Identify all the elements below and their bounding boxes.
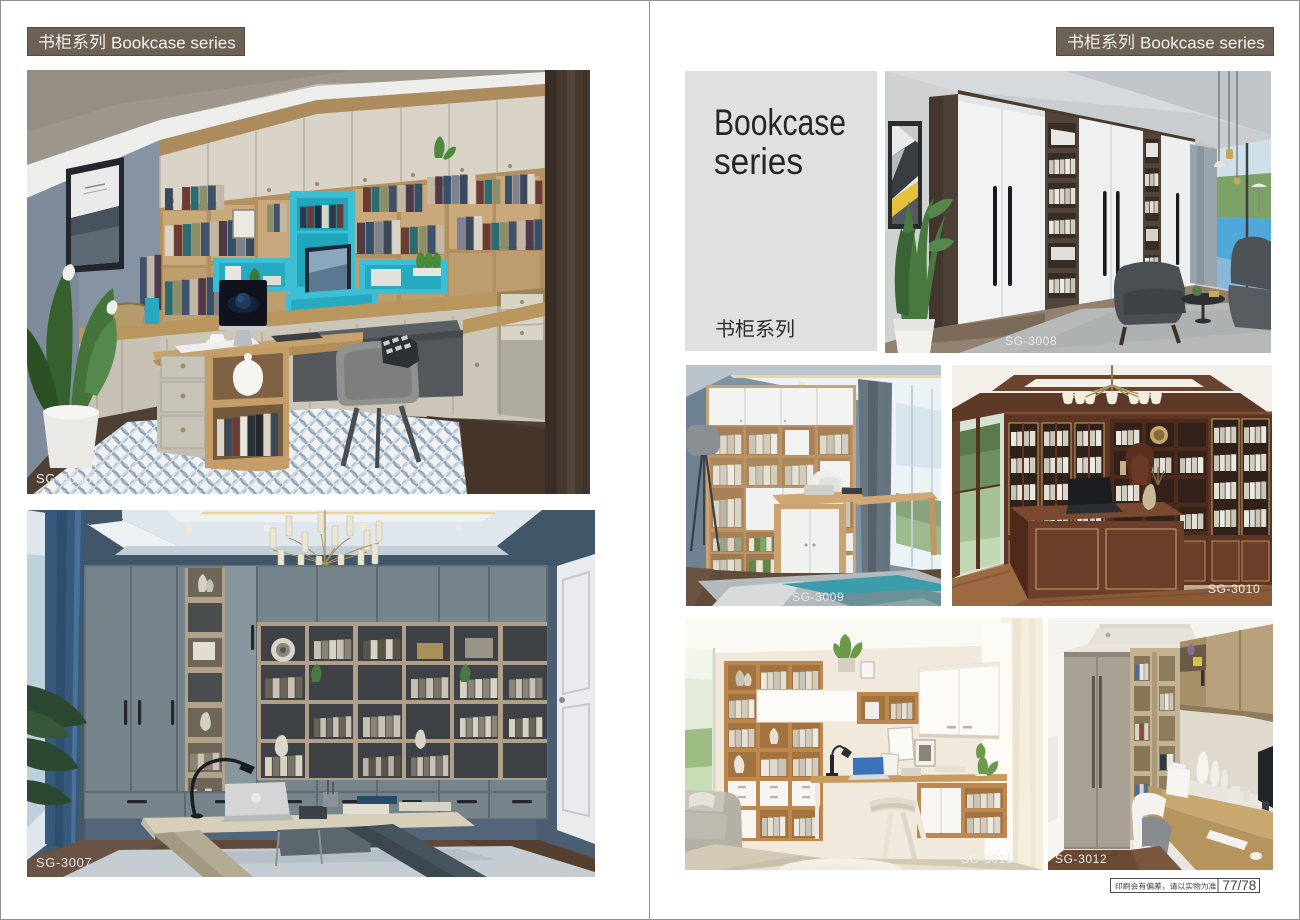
svg-text:SG-3012: SG-3012 <box>1055 852 1107 866</box>
svg-text:SG-3011: SG-3011 <box>961 852 1012 866</box>
svg-text:series: series <box>714 141 803 182</box>
svg-text:SG-3009: SG-3009 <box>792 590 844 604</box>
svg-text:Bookcase series: Bookcase series <box>1140 34 1265 53</box>
svg-text:SG-3006: SG-3006 <box>36 471 92 486</box>
svg-text:SG-3007: SG-3007 <box>36 855 92 870</box>
svg-text:Bookcase series: Bookcase series <box>111 34 236 53</box>
svg-text:SG-3010: SG-3010 <box>1208 582 1260 596</box>
svg-text:Bookcase: Bookcase <box>714 102 846 143</box>
svg-text:SG-3008: SG-3008 <box>1005 334 1057 348</box>
svg-text:77/78: 77/78 <box>1223 878 1257 893</box>
